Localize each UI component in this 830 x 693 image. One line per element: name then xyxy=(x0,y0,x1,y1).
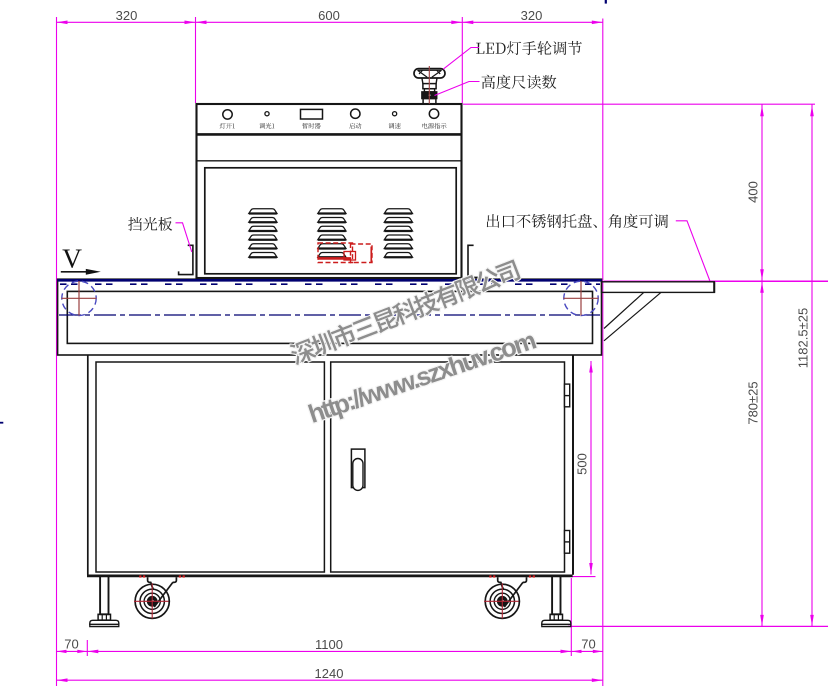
svg-text:780±25: 780±25 xyxy=(746,381,761,424)
svg-text:320: 320 xyxy=(116,8,138,23)
svg-text:1100: 1100 xyxy=(315,637,343,652)
svg-text:500: 500 xyxy=(574,453,589,475)
svg-text:320: 320 xyxy=(521,8,543,23)
svg-text:V: V xyxy=(62,243,82,274)
svg-text:1240: 1240 xyxy=(315,666,344,681)
svg-text:400: 400 xyxy=(746,181,761,203)
svg-text:70: 70 xyxy=(64,636,78,651)
svg-text:70: 70 xyxy=(581,636,595,651)
svg-text:600: 600 xyxy=(318,8,340,23)
svg-text:1182.5±25: 1182.5±25 xyxy=(796,308,811,368)
